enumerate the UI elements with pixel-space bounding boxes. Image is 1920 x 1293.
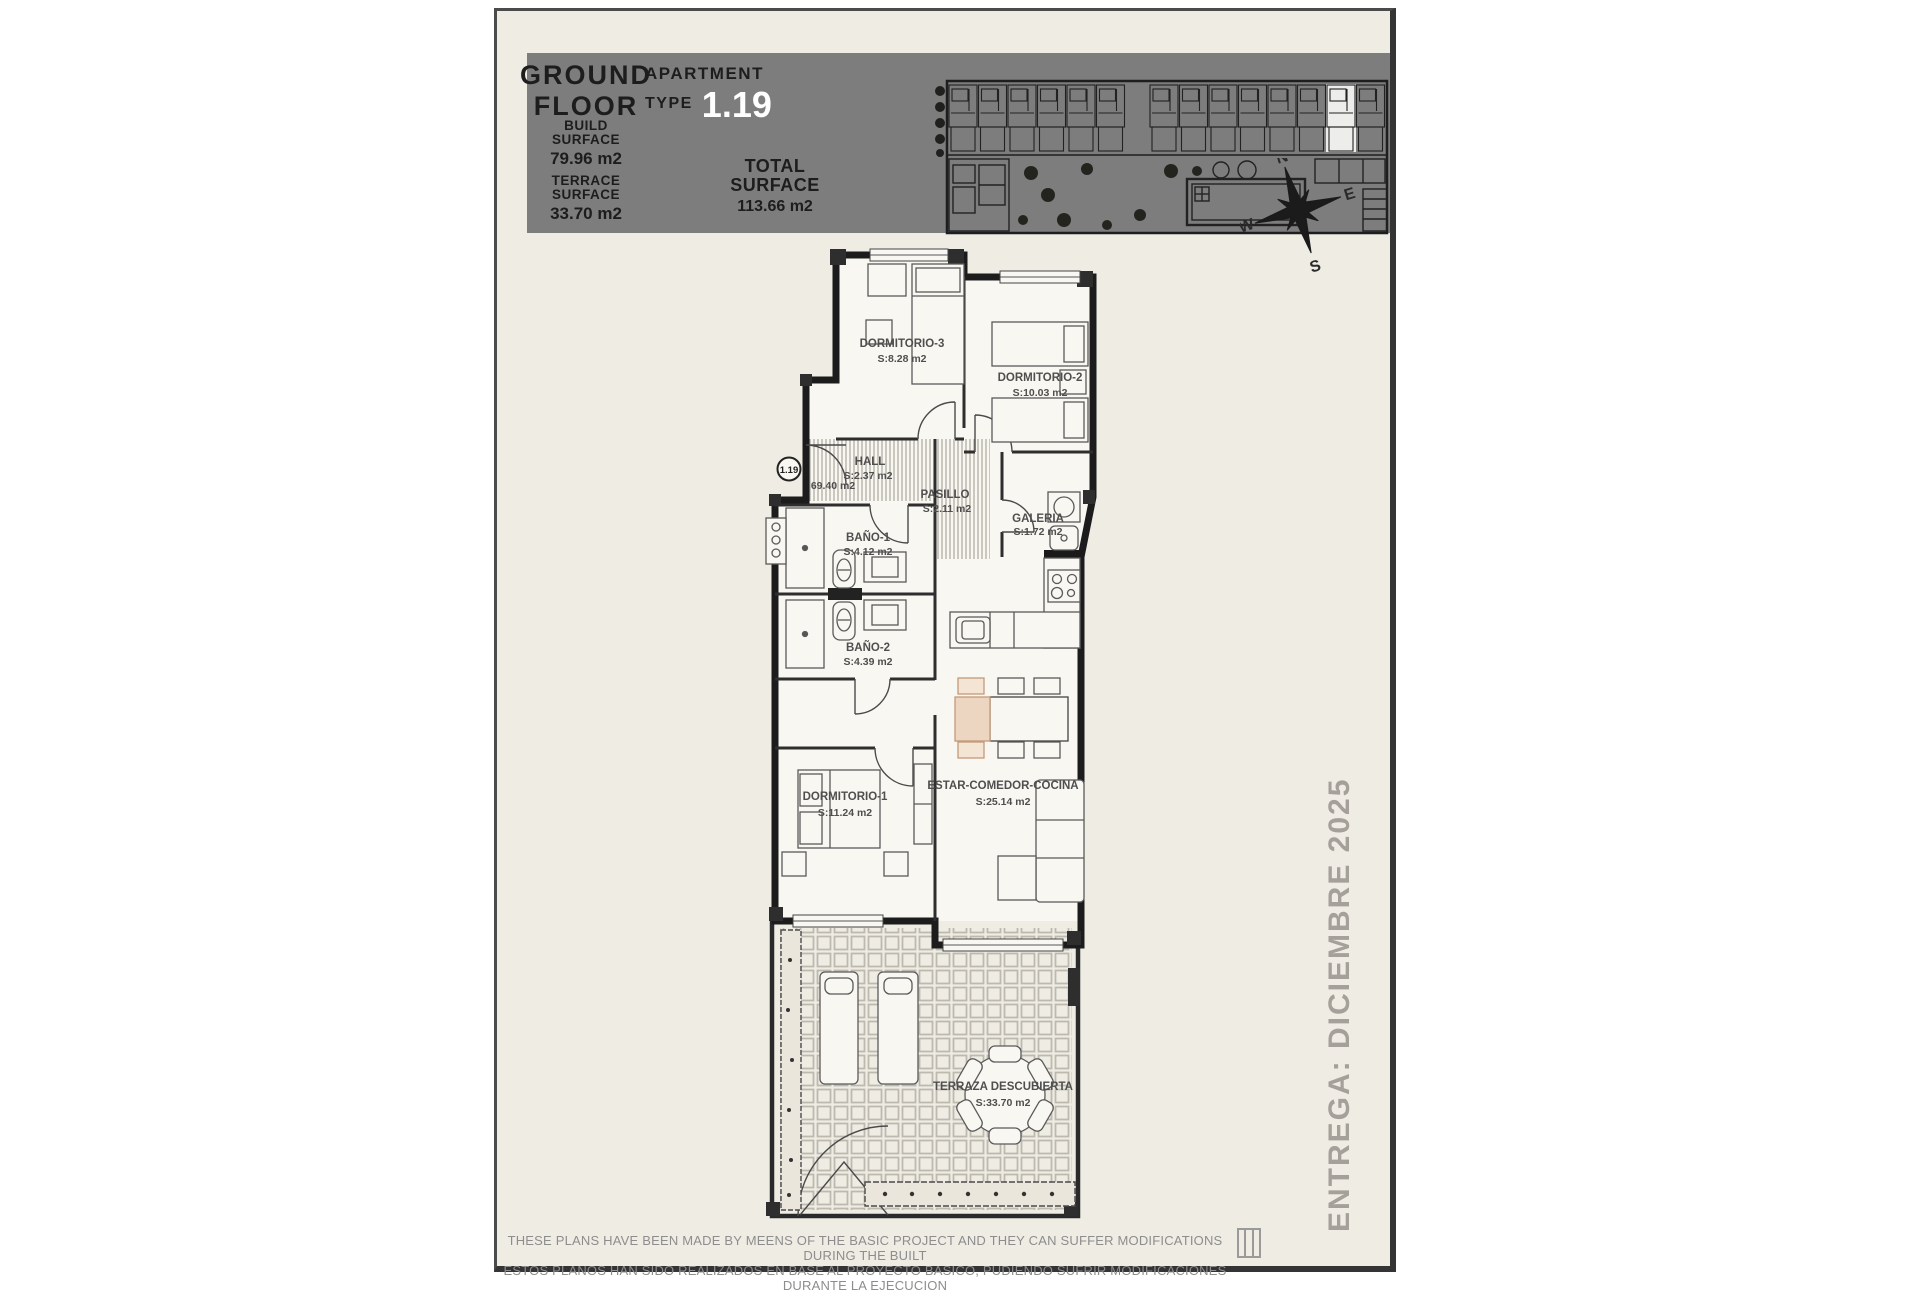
floor-plan-drawing: 1.19 69.40 m2 DORMITORIO-3 S:8.28 m2 DOR… <box>750 200 1100 1230</box>
unit-badge-number: 1.19 <box>780 465 799 476</box>
svg-text:S:4.12 m2: S:4.12 m2 <box>843 546 892 558</box>
room-label-bano-2: BAÑO-2 <box>846 641 890 654</box>
apartment-number: 1.19 <box>702 88 772 122</box>
corner-ladder-icon <box>1236 1227 1262 1259</box>
bath-divider <box>828 588 862 600</box>
room-label-dormitorio-2: DORMITORIO-2 <box>998 372 1083 384</box>
compass-e: E <box>1342 185 1356 204</box>
site-plan-trees-left <box>935 86 945 157</box>
disclaimer-line2: ESTOS PLANOS HAN SIDO REALIZADOS EN BASE… <box>500 1263 1230 1293</box>
room-label-estar: ESTAR-COMEDOR-COCINA <box>927 780 1078 792</box>
room-label-galeria: GALERIA <box>1012 513 1064 525</box>
terrace-surface-value: 33.70 m2 <box>516 204 656 223</box>
compass-rose-icon: N E S W <box>1240 158 1356 284</box>
room-label-bano-1: BAÑO-1 <box>846 531 891 544</box>
room-label-hall: HALL <box>855 456 886 468</box>
floor-title: GROUND FLOOR <box>516 60 656 122</box>
room-label-dormitorio-1: DORMITORIO-1 <box>803 791 888 803</box>
delivery-note: ENTREGA: DICIEMBRE 2025 <box>1318 772 1362 1237</box>
disclaimer-line1: THESE PLANS HAVE BEEN MADE BY MEENS OF T… <box>500 1233 1230 1263</box>
svg-text:S:8.28 m2: S:8.28 m2 <box>877 353 926 365</box>
svg-text:S:1.72 m2: S:1.72 m2 <box>1013 526 1062 538</box>
type-label: TYPE <box>645 88 693 113</box>
svg-text:S:4.39 m2: S:4.39 m2 <box>843 656 892 668</box>
build-surface-label: BUILDSURFACE <box>516 119 656 147</box>
room-label-terraza: TERRAZA DESCUBIERTA <box>933 1081 1073 1093</box>
floor-title-line1: GROUND <box>516 60 656 91</box>
site-plan-units <box>949 84 1385 152</box>
total-surface-label: TOTALSURFACE <box>716 157 834 195</box>
compass-n: N <box>1274 158 1290 168</box>
svg-text:S:10.03 m2: S:10.03 m2 <box>1013 387 1068 399</box>
svg-text:S:25.14 m2: S:25.14 m2 <box>976 796 1031 808</box>
galeria-counter <box>1044 550 1084 558</box>
unit-badge: 1.19 <box>778 458 801 481</box>
svg-text:S:11.24 m2: S:11.24 m2 <box>818 807 872 819</box>
room-label-dormitorio-3: DORMITORIO-3 <box>860 338 945 350</box>
surface-summary: BUILDSURFACE 79.96 m2 TERRACESURFACE 33.… <box>516 119 656 223</box>
compass-s: S <box>1308 257 1323 276</box>
svg-text:S:33.70 m2: S:33.70 m2 <box>976 1097 1031 1109</box>
apartment-type-block: APARTMENT TYPE 1.19 <box>645 64 815 122</box>
apartment-label: APARTMENT <box>645 64 815 84</box>
room-label-pasillo: PASILLO <box>921 489 970 501</box>
terrace-surface-label: TERRACESURFACE <box>516 174 656 202</box>
compass-w: W <box>1240 216 1257 237</box>
disclaimer: THESE PLANS HAVE BEEN MADE BY MEENS OF T… <box>500 1233 1230 1293</box>
svg-text:S:2.11 m2: S:2.11 m2 <box>923 503 972 515</box>
svg-text:S:2.37 m2: S:2.37 m2 <box>843 470 892 482</box>
build-surface-value: 79.96 m2 <box>516 149 656 168</box>
